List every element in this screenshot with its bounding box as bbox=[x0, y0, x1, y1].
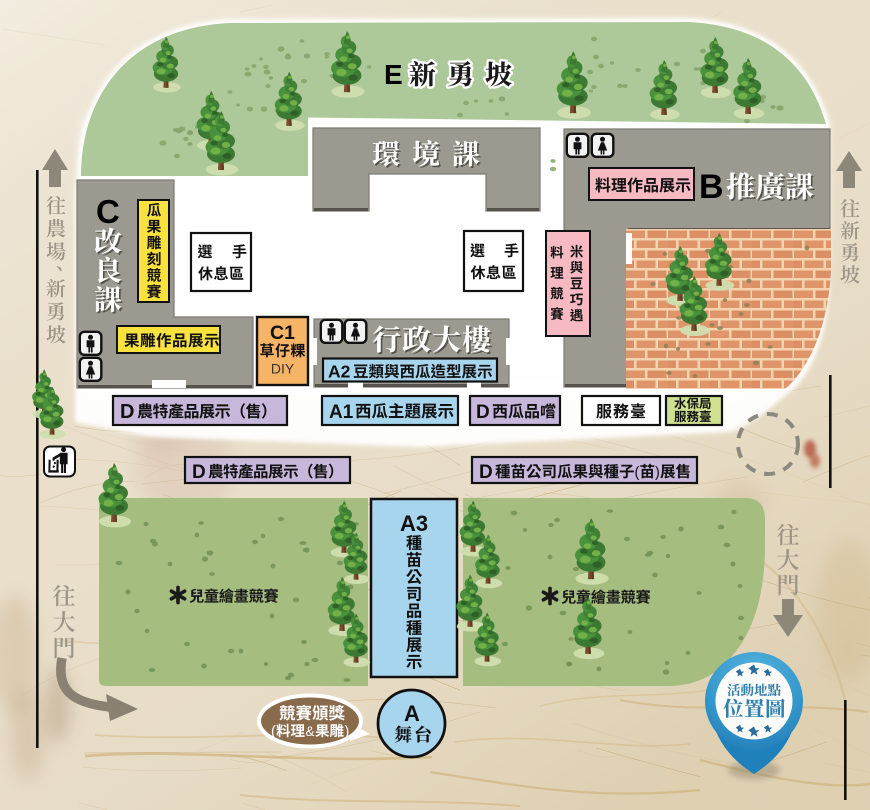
svg-text:A1: A1 bbox=[329, 402, 354, 423]
svg-text:D: D bbox=[476, 402, 490, 423]
svg-text:A2: A2 bbox=[328, 362, 351, 382]
svg-text:(: ( bbox=[271, 724, 276, 740]
svg-text:C1: C1 bbox=[270, 322, 295, 344]
svg-text:D: D bbox=[192, 462, 206, 483]
svg-text:): ) bbox=[345, 724, 350, 740]
svg-text:): ) bbox=[655, 465, 660, 481]
svg-text:C: C bbox=[96, 193, 120, 230]
svg-text:DIY: DIY bbox=[271, 361, 295, 377]
svg-text:D: D bbox=[479, 462, 493, 483]
svg-text:B: B bbox=[699, 168, 724, 206]
svg-text:&: & bbox=[306, 724, 315, 739]
svg-text:A: A bbox=[404, 701, 420, 726]
svg-text:A3: A3 bbox=[400, 511, 428, 536]
svg-text:E: E bbox=[384, 59, 403, 90]
svg-text:D: D bbox=[120, 401, 134, 423]
svg-text:(: ( bbox=[635, 465, 640, 481]
